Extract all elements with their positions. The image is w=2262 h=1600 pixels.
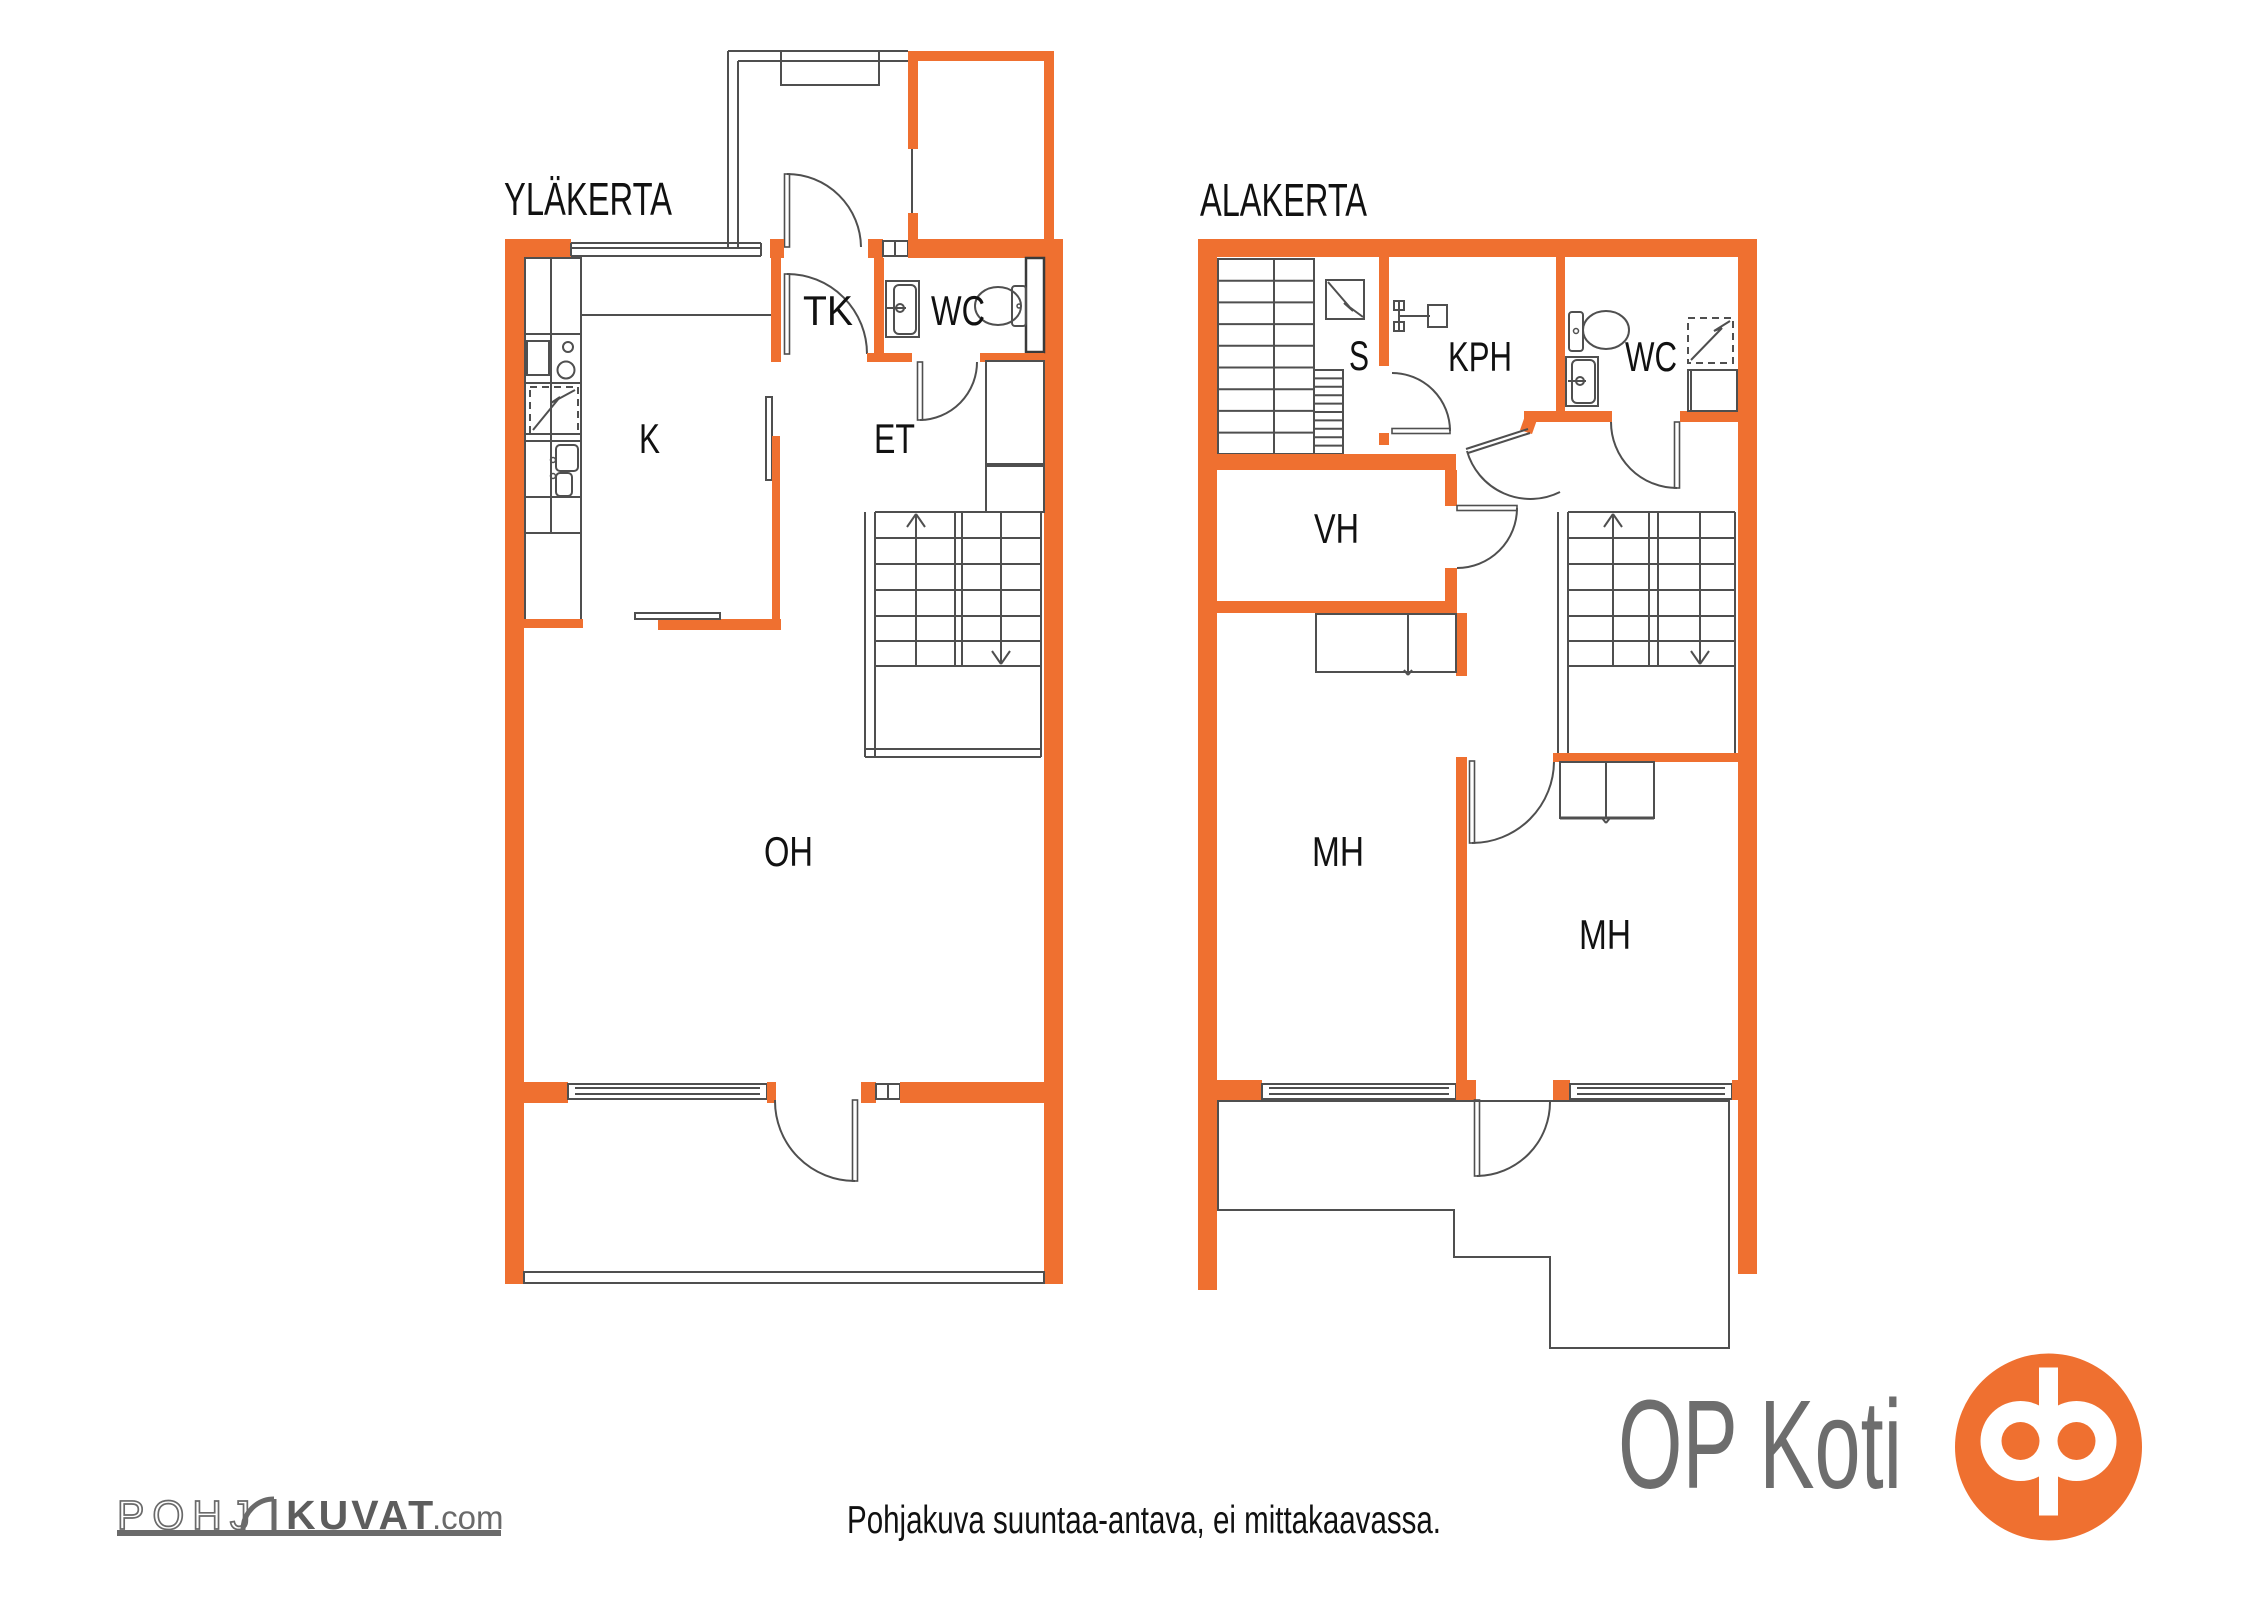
- svg-text:VH: VH: [1314, 505, 1359, 552]
- svg-text:Pohjakuva suuntaa-antava, ei m: Pohjakuva suuntaa-antava, ei mittakaavas…: [847, 1499, 1441, 1542]
- svg-text:OP Koti: OP Koti: [1618, 1374, 1902, 1515]
- svg-text:MH: MH: [1312, 828, 1364, 875]
- svg-text:WC: WC: [931, 287, 985, 334]
- svg-text:MH: MH: [1579, 911, 1631, 958]
- svg-text:KPH: KPH: [1448, 333, 1512, 380]
- svg-text:YLÄKERTA: YLÄKERTA: [504, 173, 672, 225]
- svg-text:TK: TK: [803, 287, 853, 334]
- svg-text:WC: WC: [1625, 333, 1677, 380]
- svg-text:S: S: [1349, 332, 1369, 379]
- svg-text:ALAKERTA: ALAKERTA: [1200, 174, 1367, 226]
- svg-text:K: K: [639, 415, 660, 462]
- svg-text:ET: ET: [874, 415, 915, 462]
- svg-text:OH: OH: [764, 828, 813, 875]
